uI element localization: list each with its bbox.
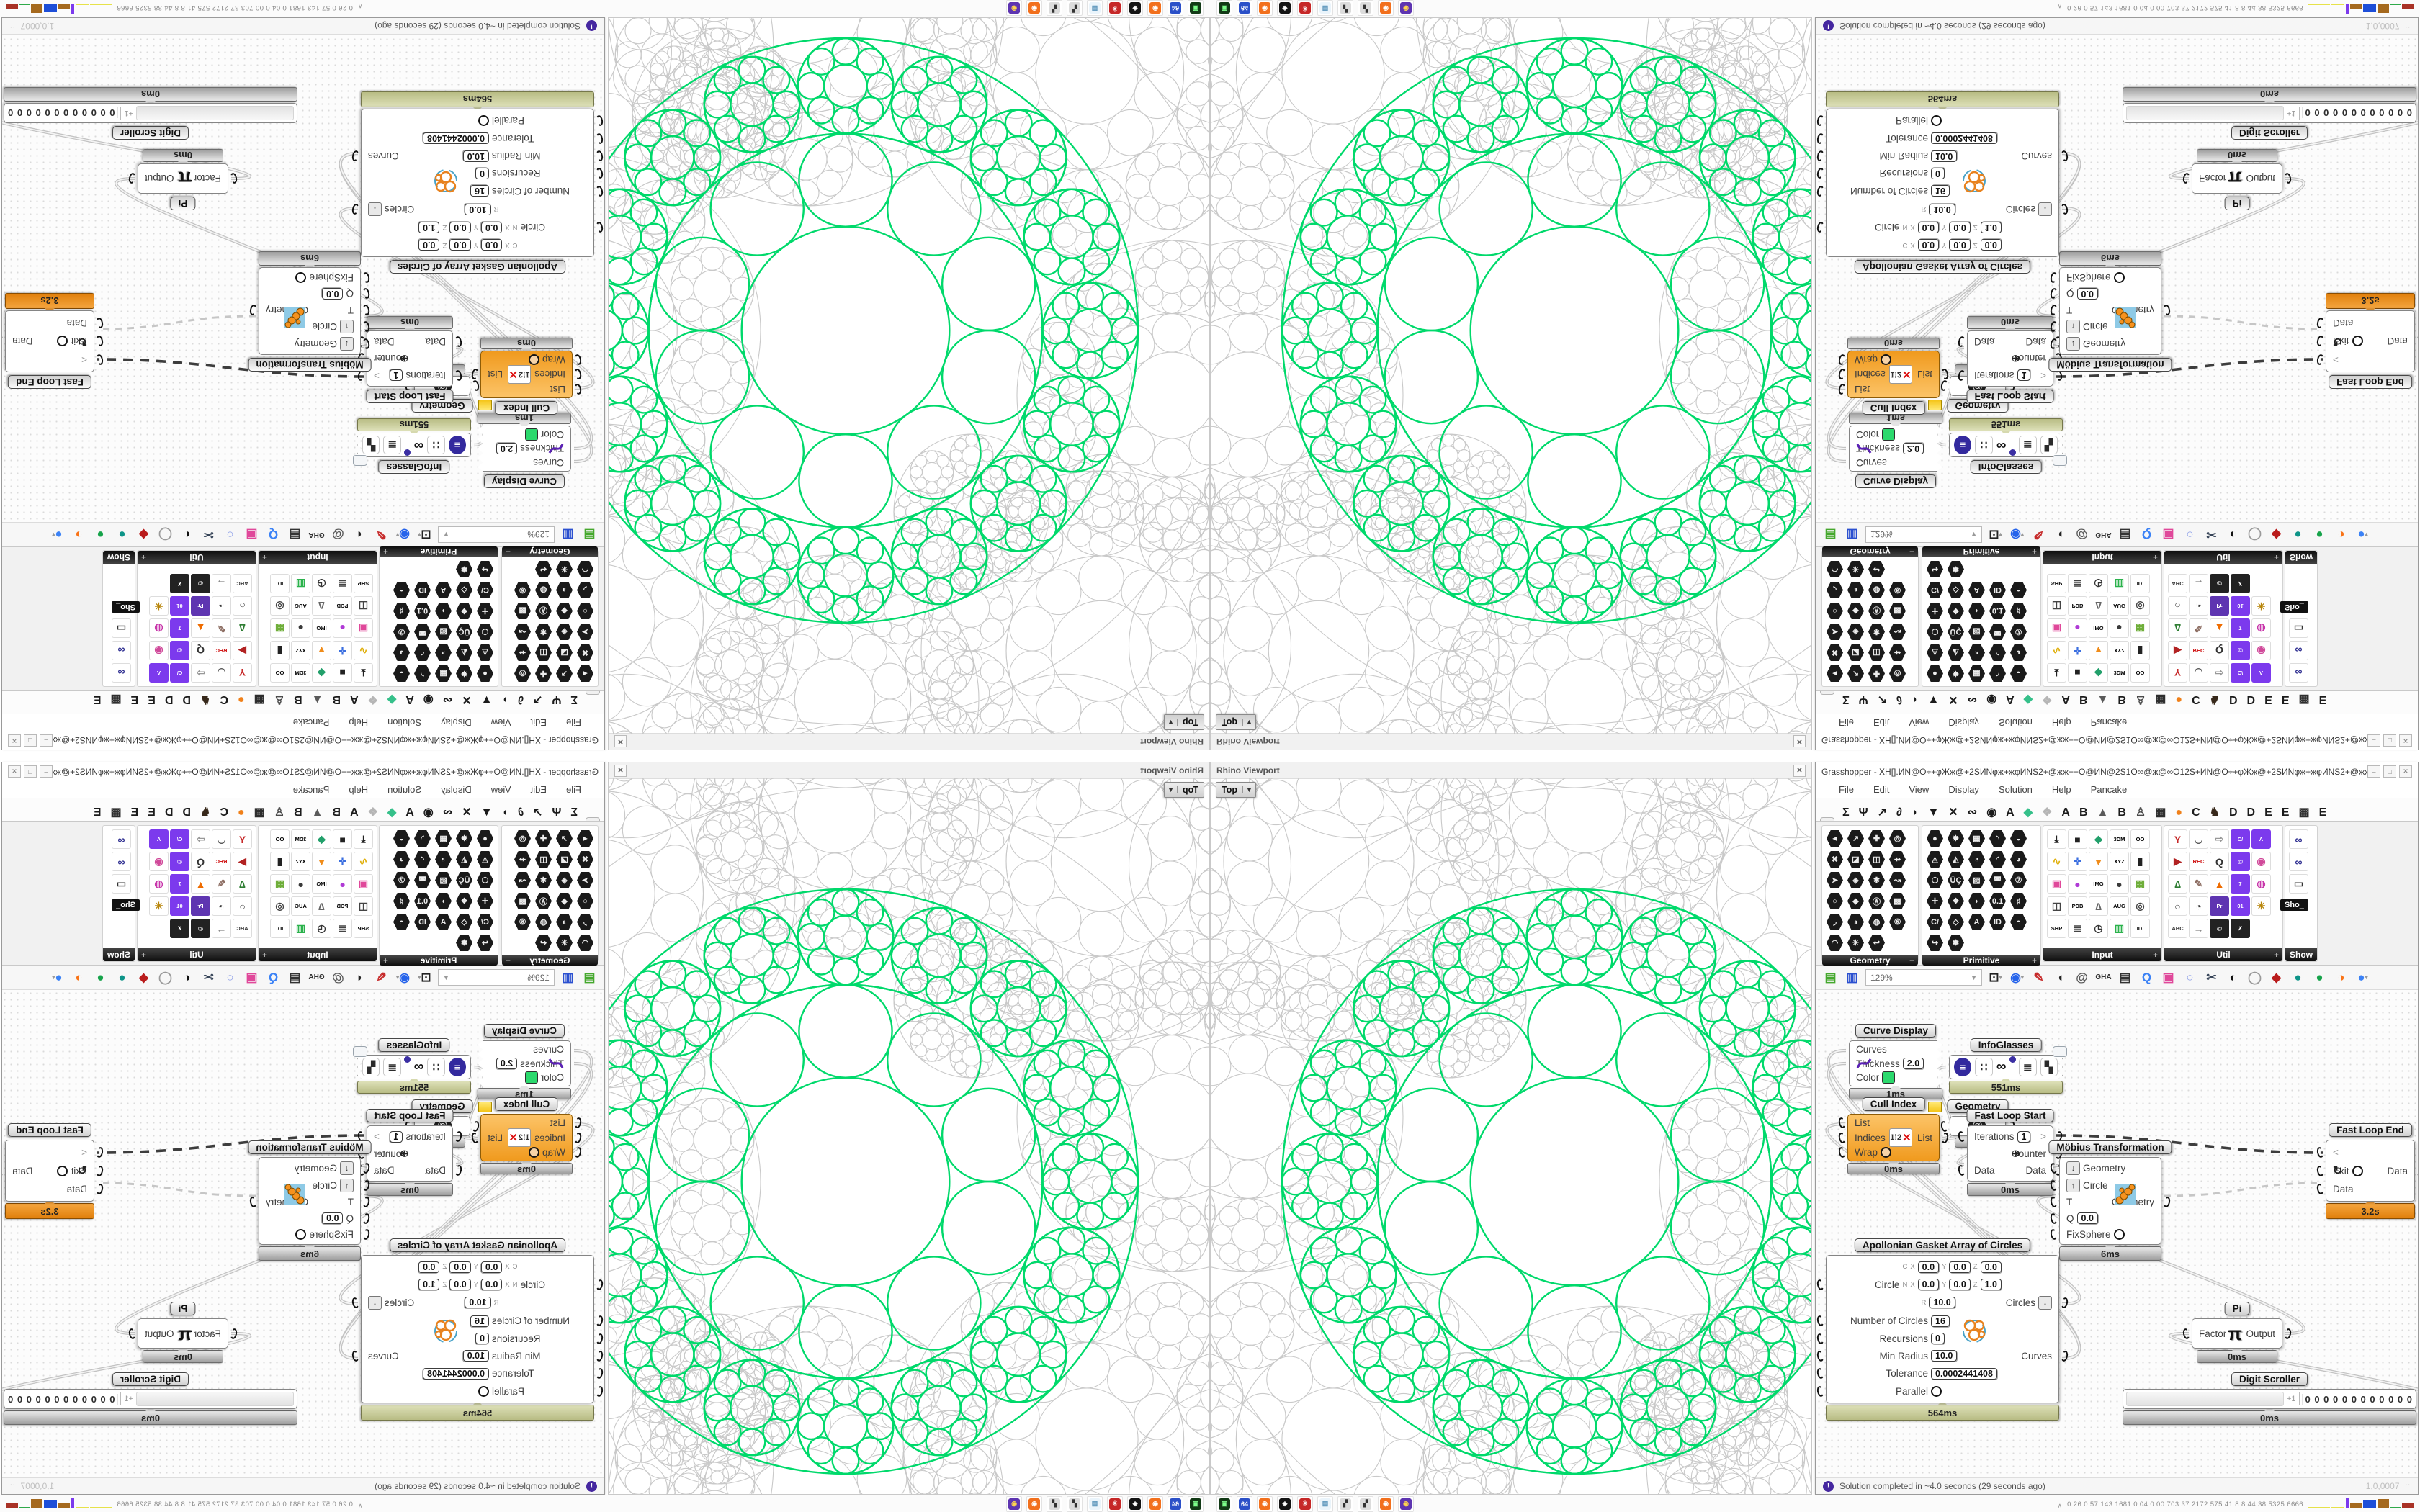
finder-magnifier-button[interactable]: Q [2138, 526, 2155, 543]
expand-icon[interactable]: + [506, 546, 511, 557]
puzzle-icon[interactable]: ▚ [362, 1058, 380, 1076]
close-icon[interactable]: ✕ [1793, 765, 1806, 777]
component-icon[interactable]: ◆ [2089, 663, 2108, 683]
component-icon[interactable]: ● [2068, 874, 2087, 894]
component-icon[interactable]: → [2189, 574, 2208, 593]
menu-item-file[interactable]: File [566, 784, 581, 795]
component-icon[interactable]: ∞ [112, 829, 131, 849]
component-icon[interactable]: ✽ [1947, 560, 1965, 578]
tab-sets[interactable]: Ψ [550, 805, 563, 821]
grid-icon[interactable]: ∷ [1975, 1058, 1992, 1076]
component-icon[interactable]: ∿ [2047, 641, 2066, 660]
component-icon[interactable]: ≣ [333, 919, 352, 938]
pin-teal-widget[interactable]: ● [2290, 969, 2306, 986]
value-box[interactable]: 0.0 [449, 1261, 470, 1273]
component-icon[interactable]: ✱ [534, 871, 552, 889]
panel-footer-show[interactable]: Show+ [103, 948, 135, 961]
sketch-pen-button[interactable]: ✎ [2030, 969, 2047, 986]
tab-params[interactable] [586, 691, 600, 695]
component-icon[interactable]: ➤ [1826, 871, 1844, 889]
component-icon[interactable]: ▨ [434, 871, 452, 889]
component-label-curve-display[interactable]: Curve Display [484, 474, 565, 488]
component-icon[interactable]: ◚ [413, 623, 431, 641]
component-icon[interactable]: ◚ [1989, 623, 2007, 641]
close-icon[interactable]: ✕ [1793, 736, 1806, 748]
tab-display[interactable]: ◉ [1985, 805, 1998, 821]
component-icon[interactable]: ♯ [2009, 602, 2027, 620]
component-icon[interactable]: @ [191, 919, 210, 938]
value-box[interactable]: 0.0 [449, 239, 470, 251]
component-icon[interactable]: ↩ [1868, 934, 1886, 952]
value-box[interactable]: 2.0 [1903, 443, 1924, 454]
tab-plugin-bird[interactable]: ♞ [199, 805, 212, 821]
component-icon[interactable]: ✎ [212, 874, 231, 894]
value-box[interactable]: 16 [1931, 185, 1950, 197]
scroller-track[interactable] [2126, 1392, 2284, 1406]
archive-icon[interactable]: ≣ [384, 436, 401, 454]
value-box[interactable]: 0 [1931, 1333, 1945, 1344]
expand-icon[interactable]: + [2032, 955, 2037, 966]
balloon-button[interactable]: ○ [222, 969, 238, 986]
ball-orange-widget[interactable]: ◑ [2333, 526, 2349, 543]
component-icon[interactable]: ▨ [1968, 871, 1986, 889]
value-box[interactable]: 10.0 [465, 204, 490, 215]
tab-plugin-d2[interactable]: D [2246, 691, 2257, 707]
at-button[interactable]: @ [330, 526, 346, 543]
component-icon[interactable]: C/ [476, 913, 494, 931]
component-icon[interactable]: ◍ [149, 874, 169, 894]
resize-grip[interactable]: :: [9, 22, 15, 30]
component-icon[interactable]: ↪ [1926, 934, 1944, 952]
component-icon[interactable]: ● [291, 874, 310, 894]
component-icon[interactable]: Q [191, 852, 210, 871]
component-body-digit-scroller[interactable]: +10 0 0 0 0 0 0 0 0 0 0 0 [4, 103, 297, 123]
panel-footer-geometry[interactable]: Geometry+ [1822, 955, 1918, 966]
component-icon[interactable]: ID [413, 913, 431, 931]
component-icon[interactable]: AUG [291, 896, 310, 916]
scroller-digits[interactable]: 0 0 0 0 0 0 0 0 0 0 0 0 [2302, 108, 2414, 119]
component-icon[interactable]: REC [2189, 641, 2208, 660]
component-icon[interactable]: ∞ [2289, 663, 2308, 683]
speech-bubble-icon[interactable] [353, 455, 367, 466]
component-icon[interactable]: ◎ [2130, 596, 2150, 616]
component-icon[interactable]: ✗ [2231, 919, 2250, 938]
scroller-cursor[interactable] [120, 1392, 122, 1405]
value-box[interactable]: 1.0 [418, 1279, 439, 1290]
component-icon[interactable]: ◜ [1989, 850, 2007, 868]
zoom-extents-button[interactable]: ⊡▾ [1987, 969, 2004, 986]
component-icon[interactable]: ✳ [555, 934, 573, 952]
jump-wires-button[interactable]: ✂ [200, 969, 217, 986]
component-icon[interactable]: ▭ [112, 874, 131, 894]
balloon-button[interactable]: ○ [2182, 526, 2198, 543]
component-icon[interactable]: ◫ [354, 896, 373, 916]
component-icon[interactable]: ◬ [476, 850, 494, 868]
component-icon[interactable]: ▶ [2168, 852, 2187, 871]
component-label-cull-index[interactable]: Cull Index [1863, 1097, 1925, 1111]
component-icon[interactable]: ◭ [1947, 644, 1965, 662]
component-icon[interactable]: ◑ [1847, 581, 1865, 599]
component-icon[interactable]: @ [2231, 641, 2250, 660]
component-icon[interactable]: ⇨ [191, 829, 210, 849]
component-icon[interactable]: ✽ [455, 560, 473, 578]
component-icon[interactable]: ◎ [514, 665, 532, 683]
tab-plugin-b2[interactable]: B [292, 805, 304, 821]
component-icon[interactable]: ⑦ [393, 871, 411, 889]
component-icon[interactable]: 0.1 [1989, 602, 2007, 620]
component-icon[interactable]: ◆ [312, 829, 331, 849]
preview-eye-button[interactable]: ◉▾ [2009, 526, 2025, 543]
component-icon[interactable]: ▦ [270, 618, 290, 638]
tab-maths[interactable]: Σ [569, 691, 579, 707]
component-icon[interactable]: ❖ [1947, 892, 1965, 910]
value-box[interactable]: 1.0 [1981, 1279, 2002, 1290]
firefox-app[interactable]: ◉ [1257, 1, 1273, 17]
component-icon[interactable]: ▦ [270, 874, 290, 894]
viewport-view-dropdown[interactable]: Top ▼ [1164, 714, 1204, 730]
component-icon[interactable]: Ⓐ [534, 892, 552, 910]
component-icon[interactable]: ◎ [514, 829, 532, 847]
component-icon[interactable]: ◞ [1826, 581, 1844, 599]
component-icon[interactable]: ◑ [1847, 913, 1865, 931]
menu-item-display[interactable]: Display [441, 784, 472, 795]
tab-plugin-b2[interactable]: B [292, 691, 304, 707]
value-box[interactable]: 1 [390, 369, 403, 381]
preview-eye-button[interactable]: ◉▾ [395, 526, 411, 543]
component-icon[interactable]: ● [2068, 618, 2087, 638]
component-icon[interactable]: 0.1 [413, 602, 431, 620]
toggle-circle[interactable] [2352, 336, 2363, 347]
component-icon[interactable]: ◉ [149, 852, 169, 871]
component-icon[interactable]: C/ [476, 581, 494, 599]
component-icon[interactable]: ◍ [1868, 581, 1886, 599]
balloon-button[interactable]: ○ [2182, 969, 2198, 986]
ball-bw-widget[interactable]: ◐ [2225, 969, 2241, 986]
menu-item-display[interactable]: Display [441, 717, 472, 728]
component-icon[interactable]: ∆ [233, 618, 252, 638]
component-label-infoglasses[interactable]: InfoGlasses [379, 460, 450, 474]
component-label-cull-index[interactable]: Cull Index [496, 401, 558, 415]
component-icon[interactable]: ▨ [1968, 623, 1986, 641]
hide-widget-button[interactable]: ◖ [2052, 526, 2069, 543]
ring-widget[interactable]: ◯ [157, 969, 174, 986]
qr-app[interactable]: ▞ [1358, 1496, 1373, 1512]
tab-plugin-a2[interactable]: A [349, 805, 360, 821]
preview-eye-button[interactable]: ◉▾ [395, 969, 411, 986]
tab-surface[interactable]: ◗ [1910, 691, 1920, 707]
firefox-app[interactable]: ◉ [1147, 1, 1163, 17]
component-icon[interactable]: ◷ [312, 919, 331, 938]
component-icon[interactable]: Y [2168, 829, 2187, 849]
component-icon[interactable]: ◭ [455, 850, 473, 868]
component-icon[interactable]: 7 [2231, 874, 2250, 894]
component-icon[interactable]: ≣ [2068, 919, 2087, 938]
floppy64-app[interactable]: 64 [1168, 1496, 1183, 1512]
ball-bw-widget[interactable]: ◐ [179, 969, 195, 986]
component-icon[interactable]: → [212, 919, 231, 938]
maximize-button[interactable]: □ [2383, 765, 2396, 778]
value-box[interactable]: 0.0 [1949, 1279, 1970, 1290]
ball-blue-widget[interactable]: ●▾ [49, 969, 66, 986]
component-icon[interactable]: ✎ [212, 618, 231, 638]
component-icon[interactable]: ID [1989, 913, 2007, 931]
grasshopper-titlebar[interactable]: Grasshopper - XH[].ИN@O÷+φЖж@+2SИNφж+жφИ… [2, 732, 604, 750]
component-icon[interactable]: OO [270, 663, 290, 683]
component-icon[interactable]: Pr [2210, 896, 2229, 916]
component-icon[interactable]: ◜ [413, 644, 431, 662]
hw-monitor-app[interactable]: ▣ [1188, 1, 1204, 17]
tab-params[interactable] [586, 817, 600, 821]
component-label-pi[interactable]: Pi [2225, 1302, 2250, 1315]
component-icon[interactable]: ■ [2068, 663, 2087, 683]
component-label-cull-index[interactable]: Cull Index [1863, 401, 1925, 415]
tab-intersect[interactable]: ✕ [1947, 805, 1959, 821]
tab-plugin-d2[interactable]: D [163, 805, 175, 821]
expand-icon[interactable]: + [107, 950, 112, 960]
component-icon[interactable]: ↪ [476, 560, 494, 578]
hide-widget-button[interactable]: ◖ [351, 526, 368, 543]
tab-plugin-b1[interactable]: B [2078, 805, 2089, 821]
balloon-button[interactable]: ○ [222, 526, 238, 543]
fox-dark-app[interactable]: ◈ [1277, 1496, 1293, 1512]
firefox-app[interactable]: ◉ [1378, 1496, 1394, 1512]
component-icon[interactable]: ◪ [1847, 850, 1865, 868]
component-icon[interactable]: ↝ [1888, 623, 1906, 641]
component-icon[interactable]: A [1968, 581, 1986, 599]
component-icon[interactable]: ID. [270, 574, 290, 593]
viewport-view-dropdown[interactable]: Top ▼ [1216, 782, 1256, 798]
tab-plugin-mountain[interactable]: ▲ [2096, 691, 2110, 707]
component-icon[interactable]: ▮ [270, 641, 290, 660]
tab-plugin-grid[interactable]: ▦ [2154, 805, 2167, 821]
component-icon[interactable]: ▭ [112, 618, 131, 638]
rhino-viewport-titlebar[interactable]: Rhino Viewport ✕ [1211, 733, 1811, 750]
component-icon[interactable]: IMG [312, 874, 331, 894]
component-icon[interactable]: ✳ [2251, 896, 2271, 916]
component-icon[interactable]: ● [333, 618, 352, 638]
tab-intersect[interactable]: ✕ [460, 805, 472, 821]
tab-plugin-d1[interactable]: D [181, 691, 192, 707]
minimize-button[interactable]: – [40, 734, 53, 747]
component-icon[interactable]: AUG [291, 596, 310, 616]
panel-footer-primitive[interactable]: Primitive+ [1922, 546, 2040, 557]
value-box[interactable]: 10.0 [1929, 1297, 1955, 1308]
grid-icon[interactable]: ∷ [427, 436, 444, 454]
component-icon[interactable]: ✱ [534, 623, 552, 641]
component-icon[interactable]: ○ [576, 602, 594, 620]
component-icon[interactable]: ▨ [434, 623, 452, 641]
grasshopper-canvas[interactable]: Curve DisplayCurvesThickness2.0Color1msI… [1816, 35, 2418, 522]
tab-surface[interactable]: ◗ [500, 691, 510, 707]
tab-plugin-dotgrid[interactable]: ▩ [2297, 691, 2311, 707]
component-icon[interactable]: OO [2130, 663, 2150, 683]
ring-widget[interactable]: ◯ [2246, 969, 2263, 986]
component-icon[interactable]: → [2189, 919, 2208, 938]
speech-bubble-icon[interactable] [2053, 1046, 2067, 1057]
package-button[interactable]: ▣ [243, 526, 260, 543]
component-icon[interactable]: ◇ [1947, 913, 1965, 931]
minimize-button[interactable]: – [2367, 734, 2380, 747]
component-icon[interactable]: ⑦ [2009, 623, 2027, 641]
toggle-circle[interactable] [1881, 1147, 1891, 1158]
tab-transform[interactable]: ∾ [1966, 691, 1978, 707]
component-icon[interactable]: ◞ [576, 913, 594, 931]
archive-icon[interactable]: ≣ [2019, 436, 2036, 454]
component-icon[interactable]: ✳ [149, 896, 169, 916]
component-icon[interactable]: ID. [2130, 919, 2150, 938]
component-icon[interactable]: C/ [1926, 581, 1944, 599]
component-icon[interactable]: ● [476, 829, 494, 847]
owl-app[interactable]: ◉ [1006, 1496, 1022, 1512]
owl-app[interactable]: ◉ [1006, 1, 1022, 17]
component-icon[interactable]: ◍ [2251, 874, 2271, 894]
tab-plugin-e1[interactable]: E [2263, 691, 2274, 707]
ball-orange-widget[interactable]: ◑ [2333, 969, 2349, 986]
firefox-app[interactable]: ◉ [1378, 1, 1394, 17]
tab-plugin-shield[interactable]: ♙ [273, 805, 286, 821]
notepad-app[interactable]: ▤ [1087, 1, 1103, 17]
component-icon[interactable]: ⇨ [191, 663, 210, 683]
tab-mesh[interactable]: ▼ [480, 805, 494, 821]
component-icon[interactable]: ↩ [534, 560, 552, 578]
tab-plugin-a1[interactable]: A [2004, 805, 2016, 821]
component-icon[interactable]: ◗ [434, 892, 452, 910]
component-label-curve-display[interactable]: Curve Display [1855, 1024, 1936, 1038]
component-icon[interactable]: 7 [2231, 618, 2250, 638]
resize-grip[interactable]: :: [9, 1482, 15, 1490]
component-icon[interactable]: ◆ [555, 892, 573, 910]
component-icon[interactable]: ◝ [1989, 665, 2007, 683]
rhino-viewport-titlebar[interactable]: Rhino Viewport ✕ [1211, 762, 1811, 779]
color-swatch[interactable] [525, 428, 538, 441]
component-icon[interactable]: ◈ [555, 871, 573, 889]
value-box[interactable]: 1 [2017, 369, 2031, 381]
expand-icon[interactable]: + [107, 553, 112, 563]
component-icon[interactable]: @ [170, 852, 189, 871]
open-file-button[interactable]: ▤ [1822, 526, 1839, 543]
tab-plugin-orange[interactable]: ● [236, 805, 246, 821]
component-icon[interactable]: SHP [2047, 574, 2066, 593]
tab-plugin-gem[interactable]: ◆ [2022, 691, 2034, 707]
component-icon[interactable]: ▲ [2210, 618, 2229, 638]
red-gear-app[interactable]: ✳ [1297, 1, 1313, 17]
finder-magnifier-button[interactable]: Q [265, 969, 282, 986]
component-icon[interactable]: ◡ [2189, 663, 2208, 683]
chevron-down-icon[interactable]: ▾ [2021, 974, 2024, 981]
preview-eye-button[interactable]: ◉▾ [2009, 969, 2025, 986]
script-doc-button[interactable]: ▤ [287, 969, 303, 986]
component-icon[interactable]: ⤓ [2047, 663, 2066, 683]
tab-plugin-dotgrid[interactable]: ▩ [109, 805, 122, 821]
component-icon[interactable]: ◕ [393, 644, 411, 662]
pin-teal-widget[interactable]: ● [114, 969, 130, 986]
tab-plugin-bird[interactable]: ♞ [2208, 805, 2221, 821]
component-icon[interactable]: ⑦ [393, 623, 411, 641]
speech-bubble-icon[interactable] [353, 1046, 367, 1057]
value-box[interactable]: 0.0 [322, 288, 343, 300]
component-icon[interactable]: ✛ [476, 602, 494, 620]
chevron-down-icon[interactable]: ▾ [418, 531, 421, 538]
maximize-button[interactable]: □ [24, 734, 37, 747]
gha-button[interactable]: GHA [2095, 969, 2112, 986]
panel-footer-util[interactable]: Util+ [2164, 948, 2282, 961]
ball-bw-widget[interactable]: ◐ [179, 526, 195, 543]
component-icon[interactable]: A [2251, 663, 2271, 683]
menu-item-file[interactable]: File [1839, 717, 1854, 728]
tab-plugin-d1[interactable]: D [2228, 805, 2239, 821]
lines-sphere-icon[interactable]: ≡ [1954, 1058, 1971, 1076]
component-icon[interactable]: C/ [1926, 913, 1944, 931]
red-gear-app[interactable]: ✳ [1107, 1, 1123, 17]
component-icon[interactable]: ABC [2168, 919, 2187, 938]
component-label-pi[interactable]: Pi [2225, 197, 2250, 210]
rhino-viewport-titlebar[interactable]: Rhino Viewport ✕ [609, 733, 1209, 750]
rhino-viewport-titlebar[interactable]: Rhino Viewport ✕ [609, 762, 1209, 779]
component-icon[interactable]: ◈ [1847, 871, 1865, 889]
component-icon[interactable]: ○ [1826, 602, 1844, 620]
chevron-down-icon[interactable]: ▾ [52, 974, 55, 981]
value-box[interactable]: 0.0002441408 [1931, 132, 1997, 144]
component-icon[interactable]: Pr [191, 896, 210, 916]
expand-icon[interactable]: + [2274, 950, 2279, 960]
component-icon[interactable]: ✎ [2189, 618, 2208, 638]
component-icon[interactable]: IMG [2089, 618, 2108, 638]
qr-app[interactable]: ▞ [1337, 1, 1353, 17]
component-icon[interactable]: ∿ [2047, 852, 2066, 871]
at-button[interactable]: @ [330, 969, 346, 986]
component-icon[interactable]: ⑥ [514, 913, 532, 931]
expand-icon[interactable]: + [262, 553, 267, 563]
component-icon[interactable]: 0.1 [1989, 892, 2007, 910]
notepad-app[interactable]: ▤ [1087, 1496, 1103, 1512]
component-icon[interactable]: ● [1926, 665, 1944, 683]
component-icon[interactable]: ✸ [1947, 829, 1965, 847]
qr-app[interactable]: ▞ [1047, 1496, 1062, 1512]
component-label-apollonian-gasket[interactable]: Apollonian Gasket Array of Circles [1855, 1238, 2030, 1252]
component-icon[interactable]: ▩ [514, 892, 532, 910]
component-label-mobius-transformation[interactable]: Möbius Transformation [248, 358, 371, 372]
sketch-pen-button[interactable]: ✎ [373, 526, 390, 543]
value-box[interactable]: 16 [470, 1315, 489, 1327]
close-icon[interactable]: ✕ [614, 765, 627, 777]
component-icon[interactable]: ◓ [2009, 581, 2027, 599]
component-icon[interactable]: ▥ [2110, 574, 2129, 593]
scroller-cursor[interactable] [120, 107, 122, 120]
tab-display[interactable]: ◉ [422, 805, 435, 821]
component-icon[interactable]: ◷ [312, 574, 331, 593]
component-icon[interactable]: ✚ [1868, 665, 1886, 683]
component-icon[interactable]: ◫ [354, 596, 373, 616]
component-body-infoglasses[interactable]: ≡∷∞≣▚ [1949, 433, 2063, 457]
component-icon[interactable]: 7 [170, 874, 189, 894]
toggle-circle[interactable] [478, 1386, 489, 1397]
component-label-cull-index[interactable]: Cull Index [496, 1097, 558, 1111]
chevron-down-icon[interactable]: ▼ [1971, 531, 1977, 539]
red-gear-app[interactable]: ✳ [1297, 1496, 1313, 1512]
component-icon[interactable]: ◑ [555, 581, 573, 599]
tab-plugin-e3[interactable]: E [2318, 805, 2329, 821]
tab-plugin-gem[interactable]: ◆ [2022, 805, 2034, 821]
tab-plugin-b2[interactable]: B [2116, 805, 2128, 821]
tab-plugin-grid[interactable]: ▦ [253, 691, 266, 707]
component-icon[interactable]: Pr [191, 596, 210, 616]
zoom-select[interactable]: 129%▼ [1865, 969, 1982, 986]
tab-plugin-shield[interactable]: ♙ [2134, 805, 2147, 821]
component-icon[interactable]: ◆ [1847, 602, 1865, 620]
component-icon[interactable]: 7 [170, 618, 189, 638]
component-icon[interactable]: ◡ [2189, 829, 2208, 849]
component-icon[interactable]: ↪ [1926, 560, 1944, 578]
